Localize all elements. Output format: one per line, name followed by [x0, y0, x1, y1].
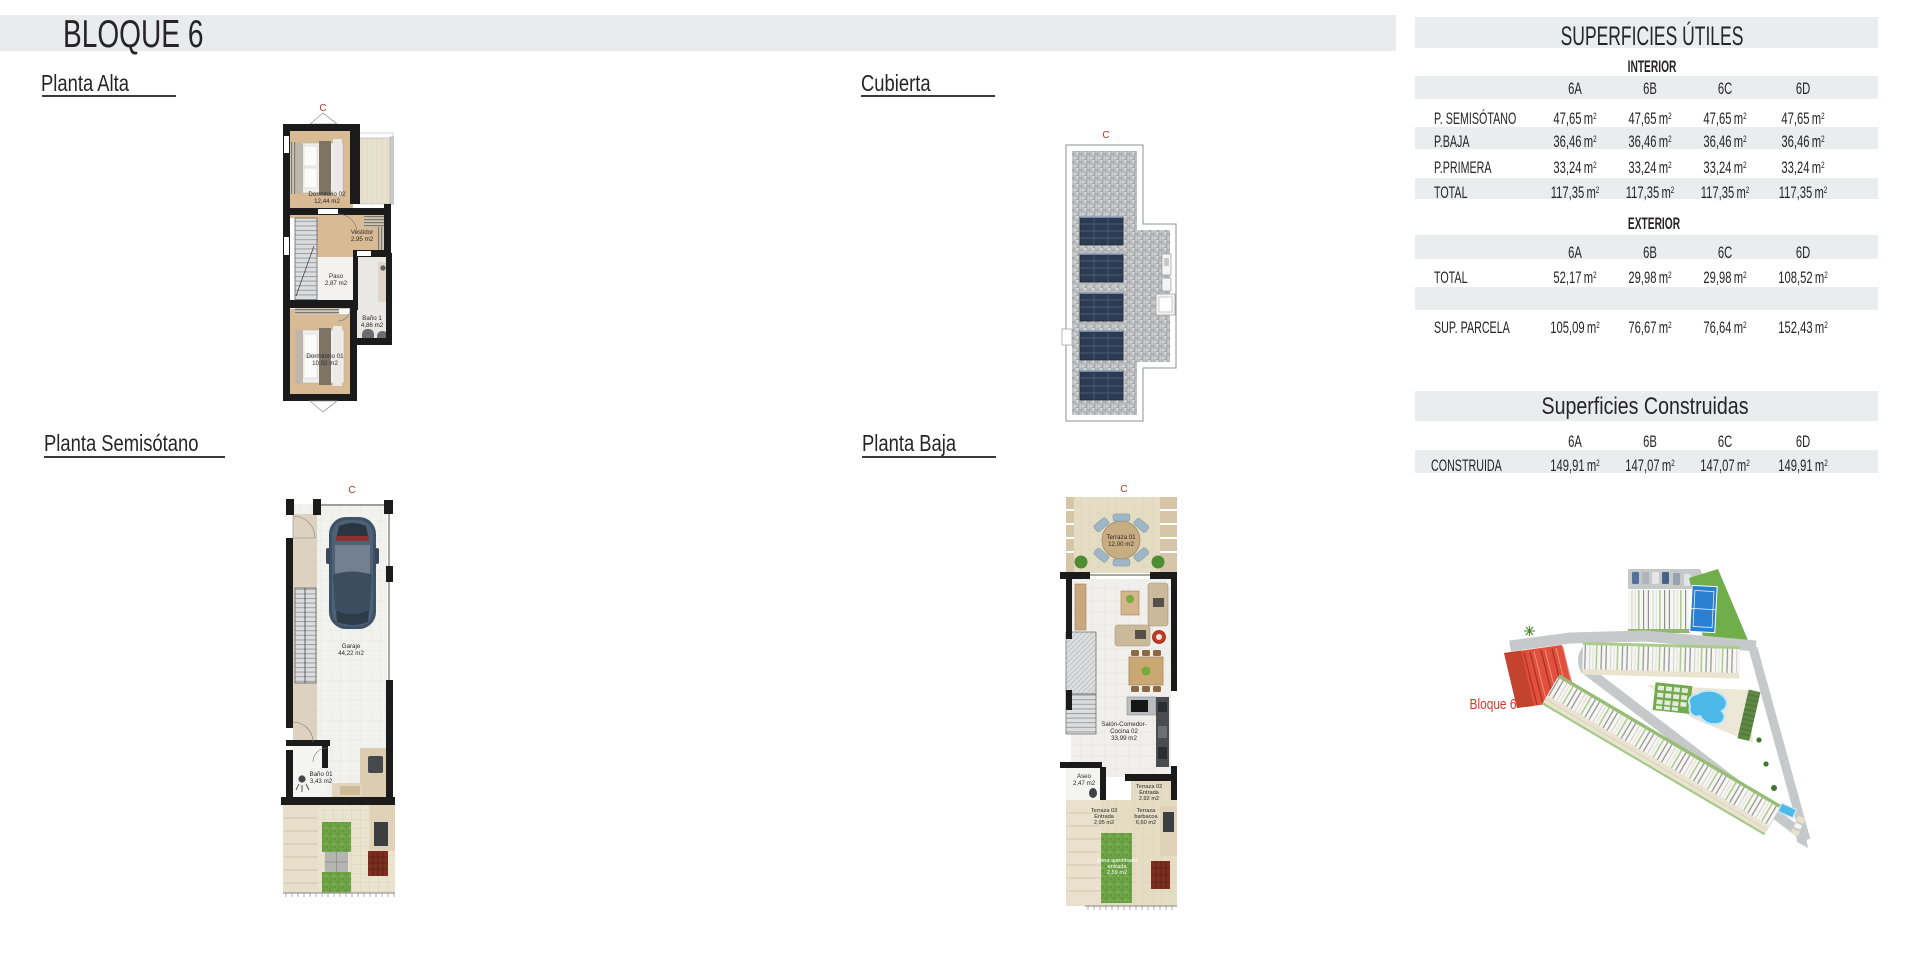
svg-text:Salón-Comedor-: Salón-Comedor- — [1101, 721, 1146, 728]
svg-text:C: C — [1102, 130, 1109, 141]
svg-text:10,02 m2: 10,02 m2 — [312, 360, 338, 367]
svg-text:Garaje: Garaje — [342, 643, 361, 650]
svg-text:Vestidor: Vestidor — [351, 229, 373, 236]
svg-text:2,95 m2: 2,95 m2 — [1094, 820, 1114, 826]
svg-text:2,95 m2: 2,95 m2 — [351, 236, 374, 243]
svg-text:C: C — [319, 103, 326, 114]
svg-text:2,47 m2: 2,47 m2 — [1073, 780, 1096, 787]
svg-text:6,60 m2: 6,60 m2 — [1136, 820, 1156, 826]
svg-text:Paso: Paso — [329, 273, 344, 280]
svg-text:Baño 1: Baño 1 — [362, 315, 382, 322]
svg-text:2,59 m2: 2,59 m2 — [1107, 870, 1127, 876]
svg-text:Dormitorio 02: Dormitorio 02 — [308, 191, 346, 198]
svg-text:4,86 m2: 4,86 m2 — [361, 322, 384, 329]
svg-text:Baño 01: Baño 01 — [309, 771, 333, 778]
svg-text:Terraza 01: Terraza 01 — [1106, 534, 1136, 541]
svg-text:3,43 m2: 3,43 m2 — [310, 778, 333, 785]
svg-text:33,99 m2: 33,99 m2 — [1111, 735, 1137, 742]
svg-text:Aseo: Aseo — [1077, 773, 1092, 780]
svg-text:C: C — [1120, 484, 1127, 495]
svg-text:12,00 m2: 12,00 m2 — [1108, 541, 1134, 548]
svg-text:Dormitorio 01: Dormitorio 01 — [306, 353, 344, 360]
svg-text:12,44 m2: 12,44 m2 — [314, 198, 340, 205]
svg-text:Cocina 02: Cocina 02 — [1110, 728, 1138, 735]
svg-text:44,22 m2: 44,22 m2 — [338, 650, 364, 657]
svg-text:Bloque 6: Bloque 6 — [1470, 696, 1517, 712]
svg-text:C: C — [348, 485, 355, 496]
svg-text:2,87 m2: 2,87 m2 — [325, 280, 348, 287]
